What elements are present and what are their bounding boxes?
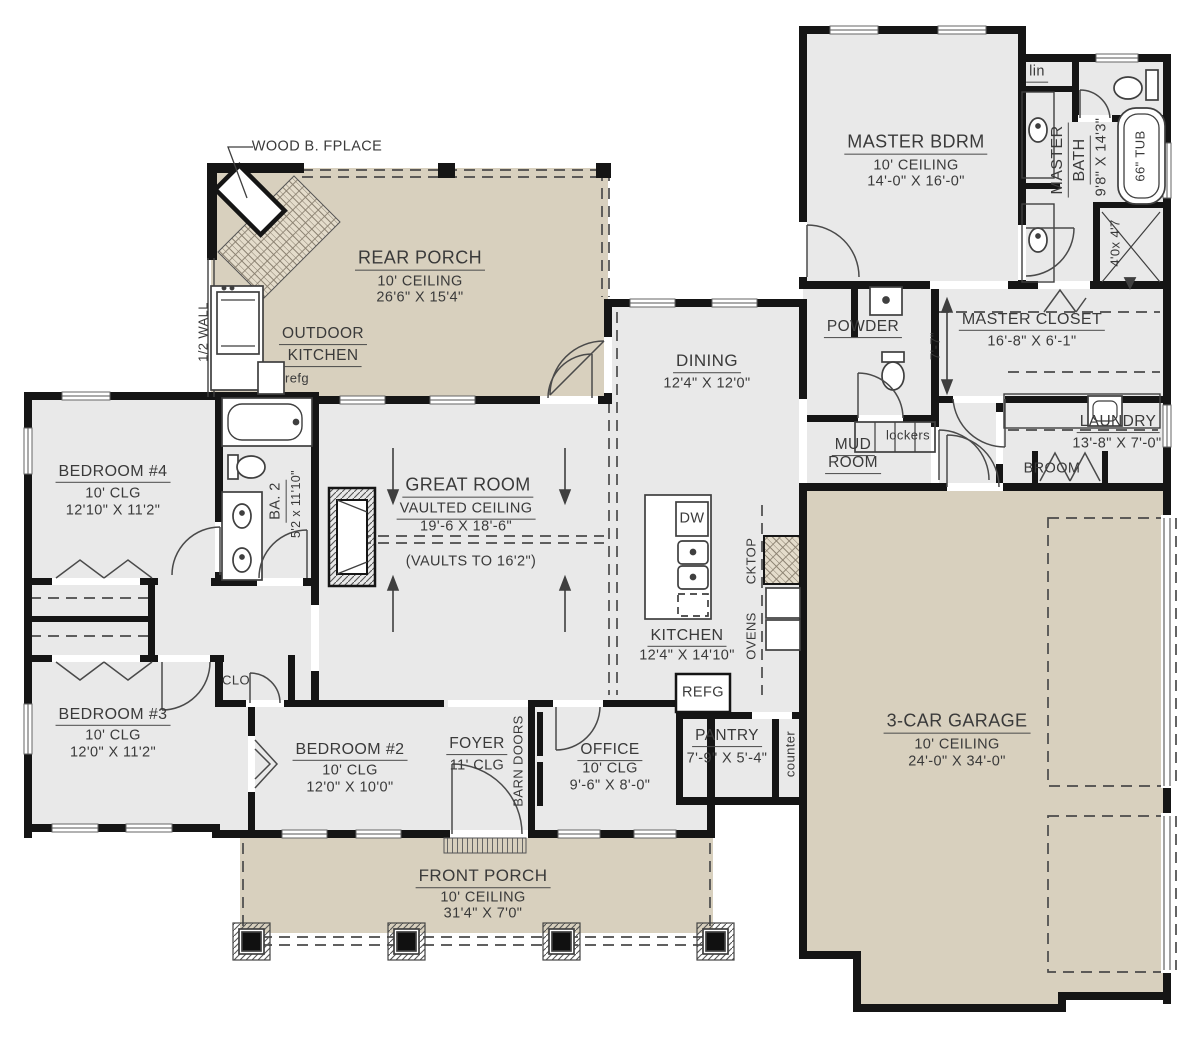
master-bath-dims: 9'8" X 14'3" [1094,118,1111,197]
pantry-label: PANTRY [692,727,762,747]
front-porch-label: FRONT PORCH [416,866,551,888]
great-room-ceiling: VAULTED CEILING [397,501,536,520]
master-bdrm-ceiling: 10' CEILING [873,158,958,175]
bath2-label: BA. 2 [268,479,287,522]
rear-porch-dims: 26'6" X 15'4" [376,290,463,307]
oven-upper [766,588,800,618]
half-wall-label: 1/2 WALL [197,302,212,362]
wood-fireplace-label: WOOD B. FPLACE [252,139,382,156]
powder-toilet [882,352,904,362]
counter-label: counter [784,731,799,777]
bedroom2-dims: 12'0" X 10'0" [306,780,393,797]
mud-room-label-2: ROOM [825,454,881,474]
floor-plan: REAR PORCH 10' CEILING 26'6" X 15'4" WOO… [0,0,1200,1045]
great-room-dims: 19'-6 X 18'-6" [420,519,512,536]
floor-plan-drawing [0,0,1200,1045]
rear-porch-label: REAR PORCH [355,248,485,271]
outdoor-kitchen-label-1: OUTDOOR [279,325,367,345]
bedroom4-dims: 12'10" X 11'2" [66,503,161,520]
master-bath-label-2: BATH [1071,135,1091,184]
garage-ceiling: 10' CEILING [914,737,999,754]
bedroom2-ceiling: 10' CLG [322,763,378,780]
office-ceiling: 10' CLG [582,761,638,778]
linen-label: lin [1026,64,1048,83]
bedroom3-label: BEDROOM #3 [56,706,171,726]
master-closet-label: MASTER CLOSET [959,311,1105,331]
bath2-dims: 5'2 x 11'10" [289,470,303,538]
kitchen-dims: 12'4" X 14'10" [639,648,735,665]
outdoor-kitchen-label-2: KITCHEN [285,347,362,367]
great-room-note: (VAULTS TO 16'2") [406,554,537,571]
lockers-label: lockers [886,429,930,444]
barn-doors-label: BARN DOORS [512,715,527,806]
kitchen-label: KITCHEN [647,627,726,647]
master-bdrm-dims: 14'-0" X 16'-0" [867,174,965,191]
cooktop-appliance [764,536,800,584]
mud-room-label-1: MUD [832,436,875,456]
outdoor-refrigerator [258,362,284,394]
dishwasher-label: DW [680,511,705,528]
front-porch-ceiling: 10' CEILING [440,890,525,907]
front-steps [444,838,526,853]
refrigerator-label: REFG [682,685,724,702]
bedroom2-label: BEDROOM #2 [293,741,408,761]
powder-label: POWDER [824,318,902,338]
master-bdrm-label: MASTER BDRM [844,132,987,155]
shower-label: 4'0x 4'7 [1109,219,1124,266]
hall-dimension: 7'-7" [929,332,944,360]
foyer-label: FOYER [446,735,507,755]
rear-porch-ceiling: 10' CEILING [377,274,462,291]
office-label: OFFICE [577,741,642,761]
master-bath-label-1: MASTER [1049,122,1069,197]
bedroom4-ceiling: 10' CLG [85,486,141,503]
dining-dims: 12'4" X 12'0" [663,376,750,393]
great-room-label: GREAT ROOM [402,475,533,498]
tub-label: 66" TUB [1134,130,1149,181]
laundry-label: LAUNDRY [1077,413,1160,433]
bedroom3-ceiling: 10' CLG [85,728,141,745]
bedroom3-dims: 12'0" X 11'2" [70,745,156,762]
oven-lower [766,620,800,650]
pantry-dims: 7'-9" X 5'-4" [687,751,768,768]
ovens-label: OVENS [745,612,760,660]
cooktop-label: CKTOP [745,538,760,585]
wc-toilet [1114,77,1142,99]
garage-dims: 24'-0" X 34'-0" [908,754,1006,771]
front-porch-dims: 31'4" X 7'0" [444,906,523,923]
broom-label: BROOM [1024,461,1081,478]
bedroom4-label: BEDROOM #4 [56,463,171,483]
master-closet-dims: 16'-8" X 6'-1" [987,334,1076,351]
outdoor-refg-label: refg [285,372,309,387]
dining-label: DINING [673,351,741,373]
foyer-ceiling: 11' CLG [450,758,504,775]
clo-label: CLO [222,674,250,689]
office-dims: 9'-6" X 8'-0" [570,778,651,795]
garage-label: 3-CAR GARAGE [884,711,1031,734]
laundry-dims: 13'-8" X 7'-0" [1072,436,1161,453]
